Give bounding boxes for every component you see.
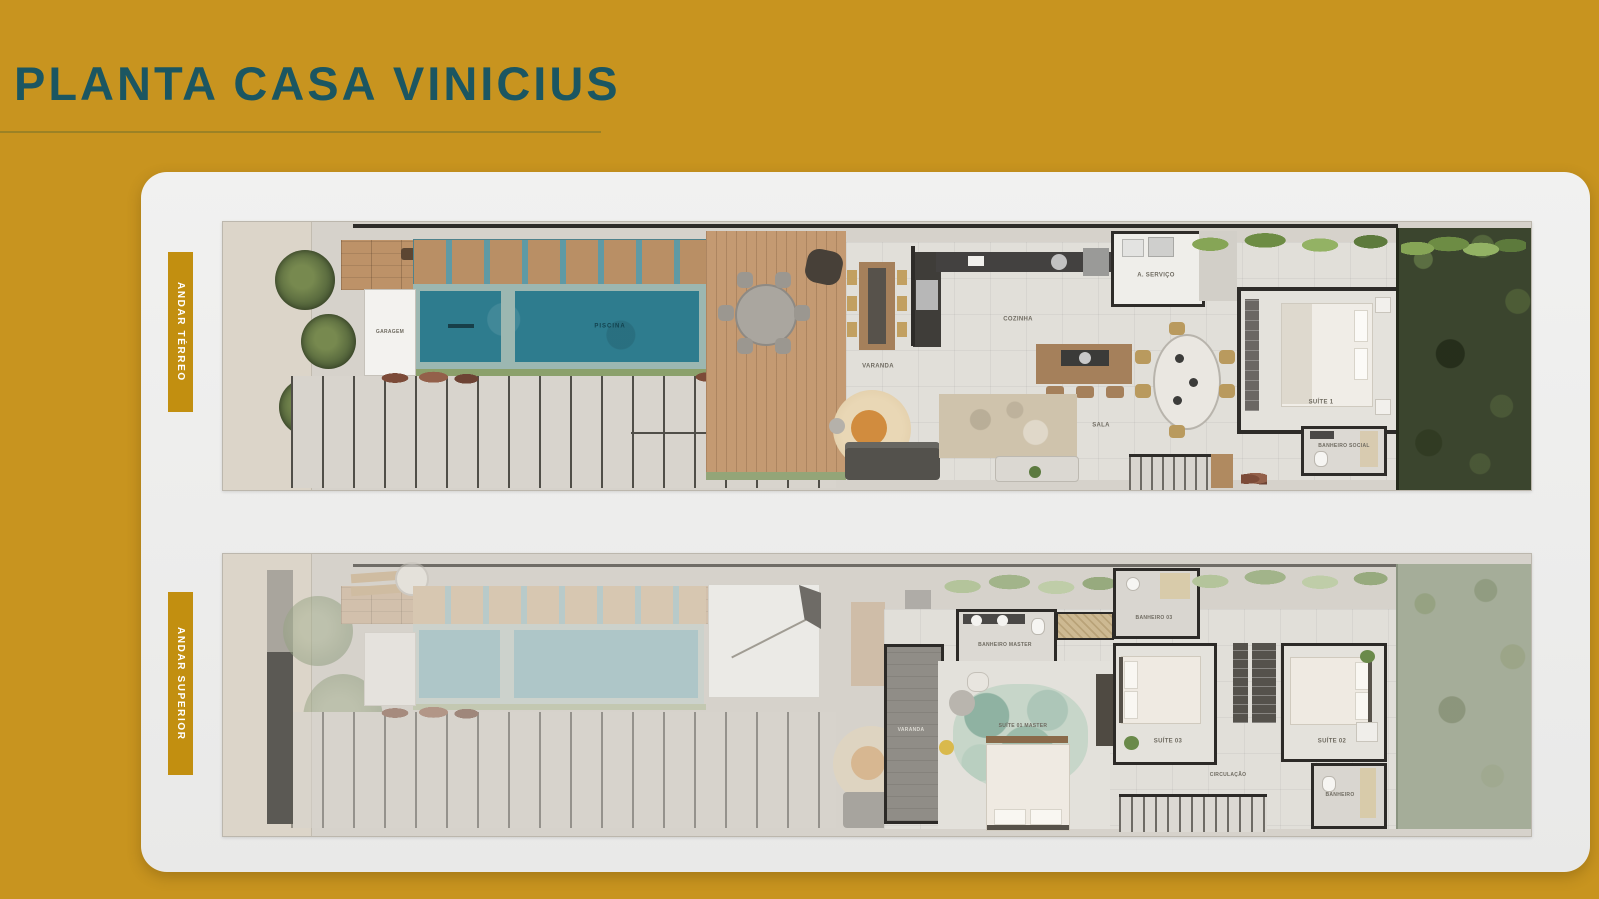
room-suite1: SUÍTE 1 <box>1237 287 1400 434</box>
room-garagem: GARAGEM <box>364 289 416 376</box>
plant-pot <box>1360 650 1375 663</box>
room-label-varanda: VARANDA <box>862 364 894 371</box>
deck-chair <box>737 338 753 354</box>
dining-chair <box>897 270 907 285</box>
pillow <box>1354 348 1368 380</box>
toilet <box>1314 451 1328 467</box>
headboard <box>1368 658 1372 724</box>
bed-bench <box>986 736 1068 743</box>
sink-bowl <box>997 615 1008 626</box>
floorplan-terreo: PISCINA GARAGEM <box>222 221 1532 491</box>
room-label-banheiro-master: BANHEIRO MASTER <box>978 643 1032 649</box>
garden-foliage <box>1401 232 1526 262</box>
pool-pergola-tiles <box>413 239 708 286</box>
bed-master <box>986 744 1070 831</box>
kitchen-wall <box>911 246 915 346</box>
bed <box>1121 656 1201 724</box>
side-table-round <box>949 690 975 716</box>
kitchen-appliance <box>1083 248 1109 276</box>
toilet <box>1322 776 1336 792</box>
kitchen-sink <box>968 256 984 266</box>
pillow <box>1124 661 1138 689</box>
deck-chair <box>775 272 791 288</box>
pillow <box>1354 310 1368 342</box>
room-label-suite03: SUÍTE 03 <box>1154 739 1182 746</box>
bar-stool <box>1076 386 1094 398</box>
floor-tab-terreo-label: ANDAR TÉRREO <box>175 282 186 382</box>
living-rug <box>939 394 1077 458</box>
room-label-varanda-sup: VARANDA <box>898 728 925 734</box>
side-garden <box>1396 228 1532 490</box>
toilet <box>1031 618 1045 635</box>
wardrobe <box>1252 643 1276 723</box>
toilet <box>1126 577 1140 591</box>
nightstand <box>1375 297 1391 313</box>
dining-chair <box>847 296 857 311</box>
room-label-banheiro03: BANHEIRO 03 <box>1136 616 1173 622</box>
dresser <box>1096 674 1114 746</box>
pool-divider <box>501 291 515 362</box>
pouf <box>851 410 887 446</box>
laundry-sink <box>1148 237 1174 257</box>
shrub-row <box>373 370 483 386</box>
wardrobe <box>1233 643 1248 723</box>
dining-chair <box>897 322 907 337</box>
plate <box>1189 378 1198 387</box>
headboard <box>1119 657 1123 723</box>
stairs <box>1129 454 1211 491</box>
room-suite02: SUÍTE 02 <box>1281 643 1387 762</box>
deck-chair <box>794 305 810 321</box>
deck-chair <box>775 338 791 354</box>
dining-chair <box>847 322 857 337</box>
floorplan-superior: VARANDA BANHEIRO MASTER SUÍTE 01 MASTER <box>222 553 1532 837</box>
plate <box>1175 354 1184 363</box>
shower <box>1360 768 1376 818</box>
room-banheiro-master: BANHEIRO MASTER <box>956 609 1057 667</box>
grass-edge <box>706 472 846 480</box>
room-varanda-sup: VARANDA <box>884 644 944 824</box>
pouf-faded <box>851 746 885 780</box>
floor-tab-superior: ANDAR SUPERIOR <box>168 592 193 775</box>
room-banheiro: BANHEIRO <box>1311 763 1387 829</box>
dining-chair <box>1169 425 1185 438</box>
pouf-yellow <box>939 740 954 755</box>
room-banheiro-social: BANHEIRO SOCIAL <box>1301 426 1387 476</box>
sink-bowl <box>971 615 982 626</box>
fridge-steel <box>916 280 938 310</box>
washer <box>1122 239 1144 257</box>
blanket <box>1282 304 1312 404</box>
room-suite-master: SUÍTE 01 MASTER <box>938 661 1110 829</box>
nightstand <box>1356 722 1378 742</box>
cooktop <box>1051 254 1067 270</box>
headboard <box>987 825 1069 830</box>
front-wall <box>353 224 1398 228</box>
room-label-suite02: SUÍTE 02 <box>1318 739 1346 746</box>
garage-faded <box>364 632 416 706</box>
paving-faded <box>291 712 836 828</box>
pool-divider-faded <box>500 630 514 698</box>
vanity <box>1310 431 1334 439</box>
dining-chair <box>1135 350 1151 364</box>
title-underline <box>0 131 601 133</box>
floor-tab-terreo: ANDAR TÉRREO <box>168 252 193 412</box>
plans-card: ANDAR TÉRREO ANDAR SUPERIOR PISCINA GARA… <box>141 172 1590 872</box>
room-label-suite-master: SUÍTE 01 MASTER <box>999 724 1048 730</box>
palm-tree <box>301 314 356 369</box>
presentation-slide: { "slide": { "title": "PLANTA CASA VINIC… <box>0 0 1599 899</box>
pillow <box>1355 692 1369 720</box>
room-label-banheiro-social: BANHEIRO SOCIAL <box>1318 444 1369 450</box>
room-suite03: SUÍTE 03 <box>1113 643 1217 765</box>
spa-marker <box>448 324 474 328</box>
dining-table-oval <box>1153 334 1221 430</box>
sofa <box>845 442 940 480</box>
hedge-faded-right <box>1185 566 1396 594</box>
bed <box>1290 657 1370 725</box>
room-label-garagem: GARAGEM <box>376 330 404 336</box>
pillow <box>1355 662 1369 690</box>
plant-pot <box>1124 736 1139 750</box>
palm-tree <box>275 250 335 310</box>
dining-chair <box>1219 350 1235 364</box>
side-table <box>829 418 845 434</box>
armchair <box>967 672 989 692</box>
dining-chair <box>1219 384 1235 398</box>
pool-faded <box>413 624 704 704</box>
page-title: PLANTA CASA VINICIUS <box>14 56 621 111</box>
dining-chair <box>1135 384 1151 398</box>
pillow <box>1124 691 1138 719</box>
round-table <box>735 284 797 346</box>
stair-landing <box>1211 454 1233 488</box>
shrub-row-faded <box>373 706 483 720</box>
table-runner <box>868 268 886 344</box>
room-label-servico: A. SERVIÇO <box>1137 273 1175 280</box>
hedge-row <box>1185 230 1396 256</box>
stairs <box>1119 794 1267 832</box>
gourmet-table-faded <box>851 602 885 686</box>
deck-chair <box>718 305 734 321</box>
bed <box>1281 303 1373 407</box>
pool-pergola-faded <box>413 586 706 624</box>
pool: PISCINA <box>413 284 706 369</box>
roof-ridge-line <box>731 618 809 659</box>
pillow <box>1030 809 1062 825</box>
island-sink <box>1079 352 1091 364</box>
dining-chair <box>847 270 857 285</box>
room-label-circulacao: CIRCULAÇÃO <box>1210 773 1247 779</box>
closet-hatch <box>1056 612 1114 640</box>
pillow <box>994 809 1026 825</box>
deck-chair <box>737 272 753 288</box>
plate <box>1173 396 1182 405</box>
hedge-faded-row <box>941 570 1121 600</box>
bar-stool <box>1106 386 1124 398</box>
room-label-piscina: PISCINA <box>594 324 625 331</box>
plant-pot <box>1029 466 1041 478</box>
nightstand <box>1375 399 1391 415</box>
roof-plane <box>708 584 820 698</box>
dining-chair <box>1169 322 1185 335</box>
side-garden-faded <box>1396 564 1532 829</box>
room-label-sala: SALA <box>1092 423 1110 430</box>
dining-chair <box>897 296 907 311</box>
floor-tab-superior-label: ANDAR SUPERIOR <box>175 627 186 741</box>
room-label-banheiro: BANHEIRO <box>1325 793 1354 799</box>
room-label-cozinha: COZINHA <box>1003 317 1032 324</box>
room-label-suite1: SUÍTE 1 <box>1309 400 1334 407</box>
closet <box>1245 299 1259 411</box>
plant-red <box>1241 472 1267 486</box>
